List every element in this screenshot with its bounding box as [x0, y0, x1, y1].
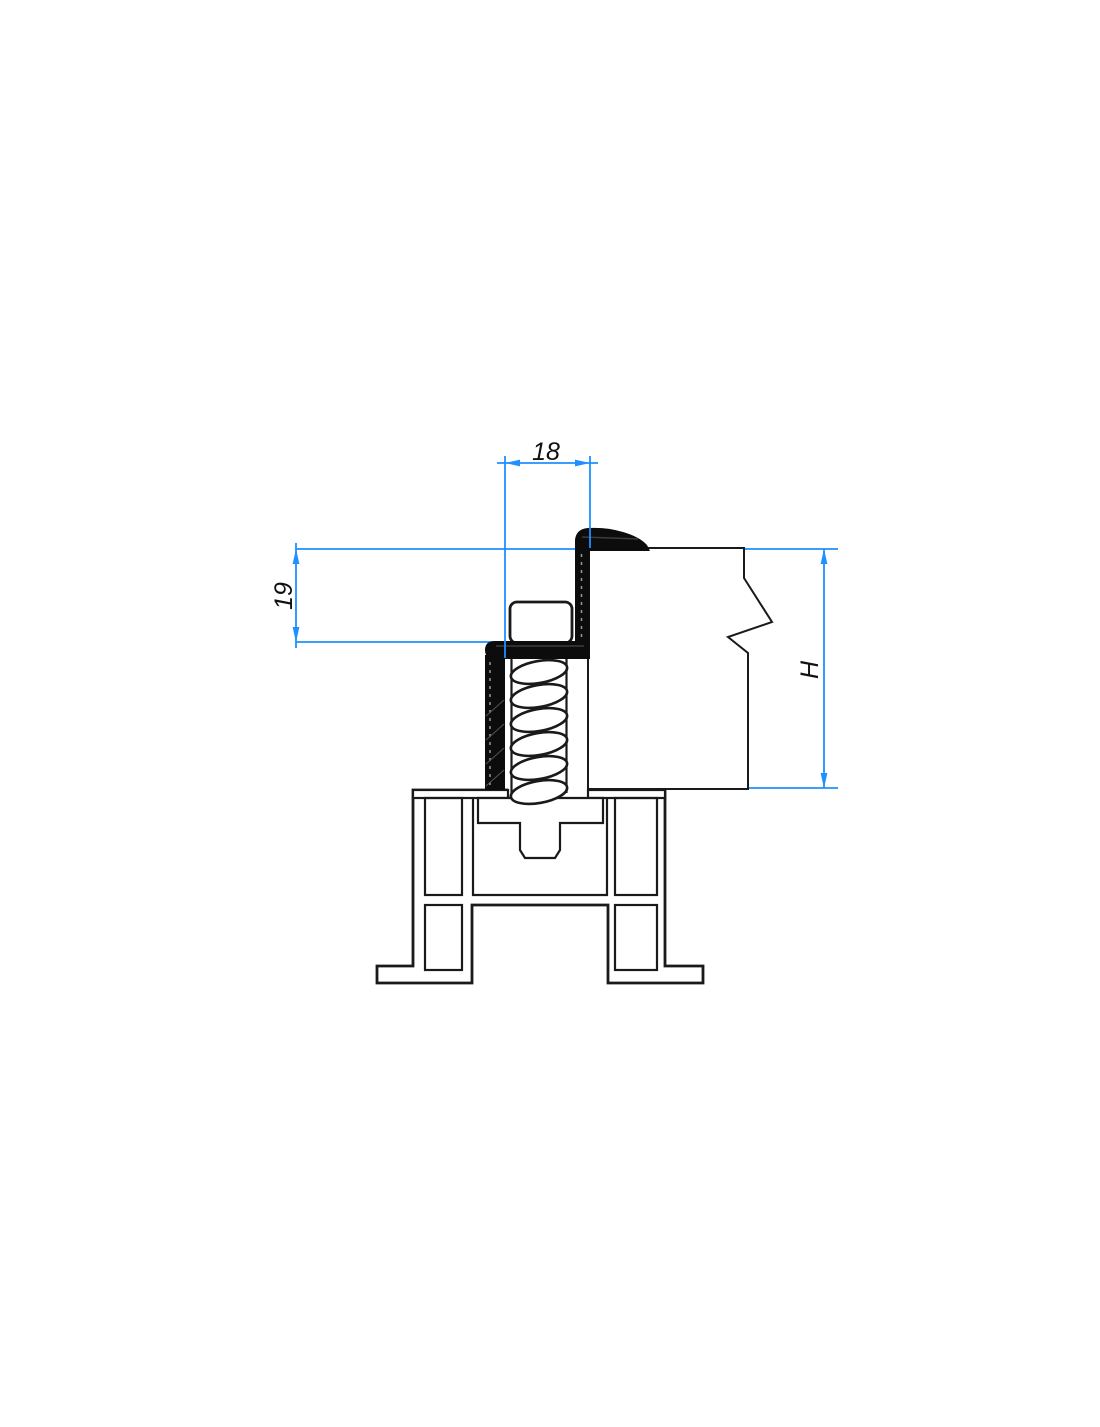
- spring-coil: [509, 656, 569, 688]
- panel-body: [588, 548, 772, 789]
- spring-side-seal: [485, 655, 505, 790]
- arrow-19-top: [293, 549, 300, 564]
- chamber-lower-right: [615, 905, 657, 970]
- chamber-lower-left: [425, 905, 462, 970]
- chamber-upper-right: [615, 798, 657, 895]
- panel-section: [588, 548, 772, 789]
- profile-top-wall-left: [413, 790, 508, 798]
- dim-18-label: 18: [532, 438, 560, 466]
- dim-19-label: 19: [270, 582, 298, 610]
- arrow-19-bottom: [293, 627, 300, 642]
- arrow-h-bottom: [821, 773, 828, 788]
- arrow-h-top: [821, 549, 828, 564]
- threshold-profile: [377, 790, 703, 983]
- top-wiper-seal: [575, 528, 650, 551]
- adjustment-cap: [510, 602, 572, 643]
- chamber-upper-left: [425, 798, 462, 895]
- spring-coil: [509, 752, 569, 784]
- spring-coil: [509, 704, 569, 736]
- spring-coil: [509, 728, 569, 760]
- screw-channel: [478, 798, 603, 858]
- arrow-18-right: [575, 460, 590, 467]
- arrow-18-left: [505, 460, 520, 467]
- technical-drawing: 18 19 H: [0, 0, 1100, 1422]
- spring-assembly: [509, 602, 572, 808]
- dim-h-label: H: [796, 660, 824, 679]
- spring-coil: [509, 680, 569, 712]
- profile-top-wall-right: [588, 790, 665, 798]
- drawing-canvas: 18 19 H: [0, 0, 1100, 1422]
